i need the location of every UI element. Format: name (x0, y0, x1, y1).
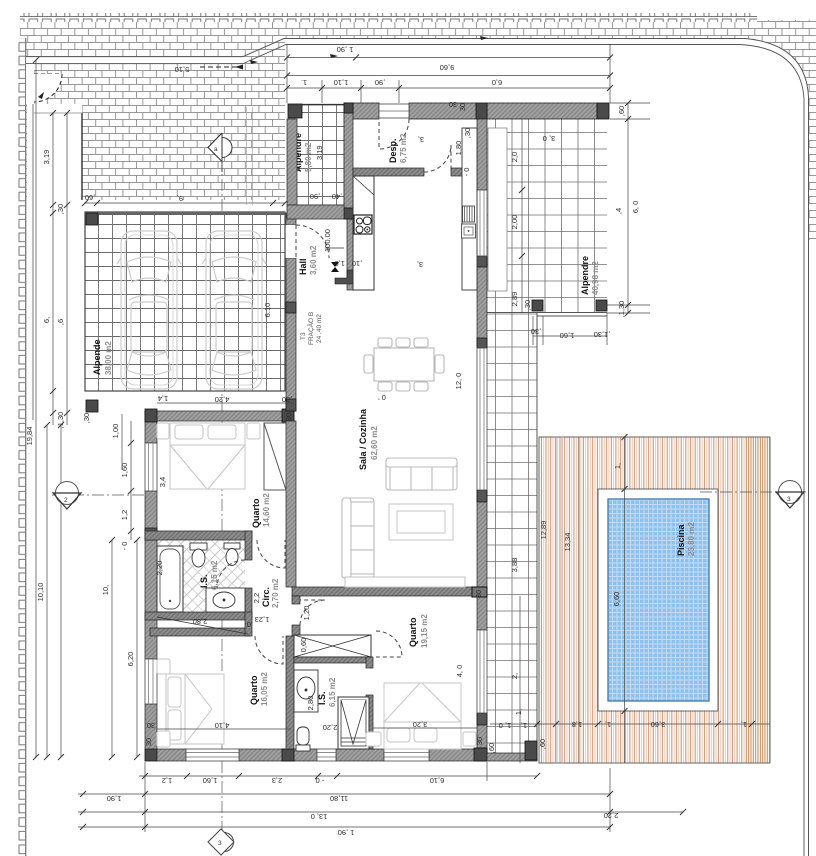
svg-text:3,4: 3,4 (158, 477, 167, 487)
svg-text:Piscina: Piscina (676, 523, 686, 556)
svg-text:2,: 2, (510, 673, 519, 679)
svg-text:1,10: 1,10 (334, 78, 349, 87)
svg-text:,30: ,30 (463, 128, 472, 138)
svg-text:6.10: 6.10 (263, 303, 272, 318)
svg-text:1,2: 1,2 (162, 776, 172, 785)
svg-text:19,15 m2: 19,15 m2 (420, 614, 429, 648)
svg-text:,60: ,60 (538, 739, 547, 749)
svg-text:2,00: 2,00 (510, 215, 519, 230)
svg-text:2,20: 2,20 (323, 723, 338, 732)
svg-text:Alpende: Alpende (92, 339, 102, 375)
svg-text:1 ,90: 1 ,90 (337, 45, 354, 54)
svg-text:,90: ,90 (375, 78, 385, 87)
svg-text:- 0: - 0 (120, 542, 129, 551)
svg-text:4,10: 4,10 (215, 721, 230, 730)
svg-text:- 0: - 0 (462, 168, 471, 177)
svg-text:,1,30: ,1,30 (594, 330, 611, 339)
svg-text:1,60: 1,60 (120, 463, 129, 478)
svg-text:4,20: 4,20 (215, 395, 230, 404)
svg-text:2,89: 2,89 (510, 292, 519, 307)
svg-text:100.00: 100.00 (323, 229, 332, 252)
svg-text:6,15 m2: 6,15 m2 (210, 560, 219, 590)
svg-text:1,: 1, (521, 721, 527, 730)
svg-text:0 ': 0 ' (378, 393, 386, 402)
svg-text:0,60: 0,60 (299, 638, 308, 653)
svg-text:,60: ,60 (85, 193, 95, 202)
svg-text:9,60: 9,60 (440, 63, 455, 72)
svg-text:Quarto: Quarto (408, 617, 418, 647)
svg-text:10,10: 10,10 (36, 583, 45, 602)
svg-text:3: 3 (218, 840, 222, 847)
svg-text:I.S.: I.S. (317, 691, 327, 705)
svg-text:3, 0: 3, 0 (543, 134, 556, 143)
svg-text:6,60: 6,60 (612, 592, 621, 607)
svg-text:,30: ,30 (82, 413, 91, 423)
svg-text:12,89: 12,89 (539, 521, 548, 540)
svg-text:13,34: 13,34 (563, 533, 572, 552)
svg-text:4, 0: 4, 0 (455, 665, 464, 678)
svg-text:30: 30 (475, 737, 484, 745)
svg-text:38,00 m2: 38,00 m2 (104, 341, 113, 375)
svg-text:Quarto: Quarto (249, 675, 259, 705)
svg-text:1,: 1, (741, 720, 747, 729)
svg-text:12, 0: 12, 0 (454, 373, 463, 390)
svg-text:2: 2 (64, 497, 68, 504)
svg-text:16,05 m2: 16,05 m2 (260, 672, 269, 706)
svg-text:T3: T3 (300, 332, 307, 340)
svg-text:3,60 m2: 3,60 m2 (309, 245, 318, 275)
svg-text:- 0: - 0 (316, 776, 325, 785)
svg-text:23,80 m2: 23,80 m2 (687, 522, 696, 556)
svg-text:3,: 3, (418, 135, 424, 144)
svg-text:2,20: 2,20 (155, 561, 164, 576)
svg-text:19,84: 19,84 (25, 427, 34, 446)
svg-text:1,00: 1,00 (111, 424, 120, 439)
svg-text:,30: ,30 (523, 300, 532, 310)
svg-text:10,: 10, (101, 585, 110, 595)
svg-text:2,20: 2,20 (604, 811, 619, 820)
svg-text:3,20: 3,20 (413, 720, 428, 729)
svg-text:3,: 3, (417, 260, 423, 269)
svg-text:30: 30 (458, 103, 467, 111)
svg-text:,60: ,60 (617, 106, 626, 116)
svg-text:3,88: 3,88 (510, 558, 519, 573)
svg-text:6,0: 6,0 (492, 78, 502, 87)
svg-text:I.S.: I.S. (199, 574, 209, 588)
svg-text:Hall: Hall (298, 258, 308, 275)
svg-text:,60: ,60 (487, 743, 496, 753)
svg-text:6,10: 6,10 (430, 776, 445, 785)
svg-text:1, 0: 1, 0 (499, 721, 512, 730)
svg-text:2,3: 2,3 (272, 776, 282, 785)
svg-text:5,10: 5,10 (175, 65, 190, 74)
svg-text:40,98 m2: 40,98 m2 (591, 261, 600, 295)
svg-text:,1,30: ,1,30 (617, 301, 626, 318)
svg-text:30: 30 (449, 100, 457, 109)
svg-text:1.: 1. (301, 78, 307, 87)
svg-text:2,80: 2,80 (306, 696, 315, 711)
svg-text:Sala / Cozinha: Sala / Cozinha (358, 408, 368, 470)
svg-text:1,60: 1,60 (203, 776, 218, 785)
svg-text:14,60 m2: 14,60 m2 (262, 493, 271, 527)
svg-text:1,6: 1,6 (335, 259, 345, 268)
svg-text:3,60: 3,60 (651, 720, 666, 729)
svg-text:24 ,40 m2: 24 ,40 m2 (316, 314, 323, 343)
svg-text:13, 0: 13, 0 (311, 812, 328, 821)
svg-text:1,90: 1,90 (107, 794, 122, 803)
svg-text:Circ.: Circ. (261, 587, 271, 607)
svg-text:,40: ,40 (332, 192, 342, 201)
svg-text:6,15 m2: 6,15 m2 (328, 677, 337, 707)
svg-text:1,4: 1,4 (158, 394, 168, 403)
svg-text:1,: 1, (514, 709, 523, 715)
svg-text:,0: ,0 (247, 620, 253, 629)
svg-text:,1,30: ,1,30 (56, 412, 65, 429)
svg-text:2,2: 2,2 (252, 593, 261, 603)
svg-text:3: 3 (787, 496, 791, 503)
svg-text:5,80 m2: 5,80 m2 (304, 142, 313, 172)
svg-text:Alpendre: Alpendre (580, 256, 590, 295)
svg-text:FRAÇÃO B: FRAÇÃO B (306, 312, 315, 345)
svg-text:11,80: 11,80 (330, 794, 348, 803)
svg-text:,30: ,30 (282, 395, 292, 404)
svg-text:30: 30 (147, 721, 155, 730)
svg-text:1,20: 1,20 (302, 606, 311, 621)
svg-text:1,: 1, (613, 463, 622, 469)
svg-text:30: 30 (474, 590, 483, 598)
svg-text:Desp.: Desp. (388, 138, 398, 163)
svg-text:3.19: 3.19 (315, 145, 324, 160)
svg-text:6, 0: 6, 0 (631, 201, 640, 214)
svg-text:1 ,90: 1 ,90 (338, 828, 355, 837)
svg-text:6,: 6, (42, 317, 51, 323)
svg-text:,30: ,30 (56, 204, 65, 214)
svg-text:,90: ,90 (310, 192, 320, 201)
svg-text:30: 30 (144, 738, 153, 746)
svg-text:,6: ,6 (56, 319, 65, 325)
svg-text:30: 30 (284, 413, 293, 421)
svg-text:2,0: 2,0 (510, 152, 519, 162)
svg-text:1,: 1, (605, 720, 611, 729)
svg-text:6,20: 6,20 (126, 652, 135, 667)
svg-text:2,70 m2: 2,70 m2 (271, 578, 280, 608)
svg-text:,10: ,10 (352, 259, 362, 268)
svg-text:3,19: 3,19 (42, 150, 51, 165)
svg-text:6,75 m2: 6,75 m2 (399, 133, 408, 163)
svg-text:1,60: 1,60 (560, 331, 575, 340)
svg-text:1,2: 1,2 (120, 510, 129, 520)
svg-text:,4: ,4 (614, 208, 623, 214)
svg-text:1,8: 1,8 (572, 720, 582, 729)
svg-text:62,60 m2: 62,60 m2 (370, 426, 379, 460)
svg-text:9,: 9, (177, 194, 183, 203)
svg-text:,30: ,30 (531, 327, 541, 336)
svg-text:Quarto: Quarto (251, 498, 261, 528)
svg-text:1,80: 1,80 (454, 141, 463, 156)
svg-text:1,23: 1,23 (255, 615, 270, 624)
svg-text:a: a (214, 146, 218, 153)
